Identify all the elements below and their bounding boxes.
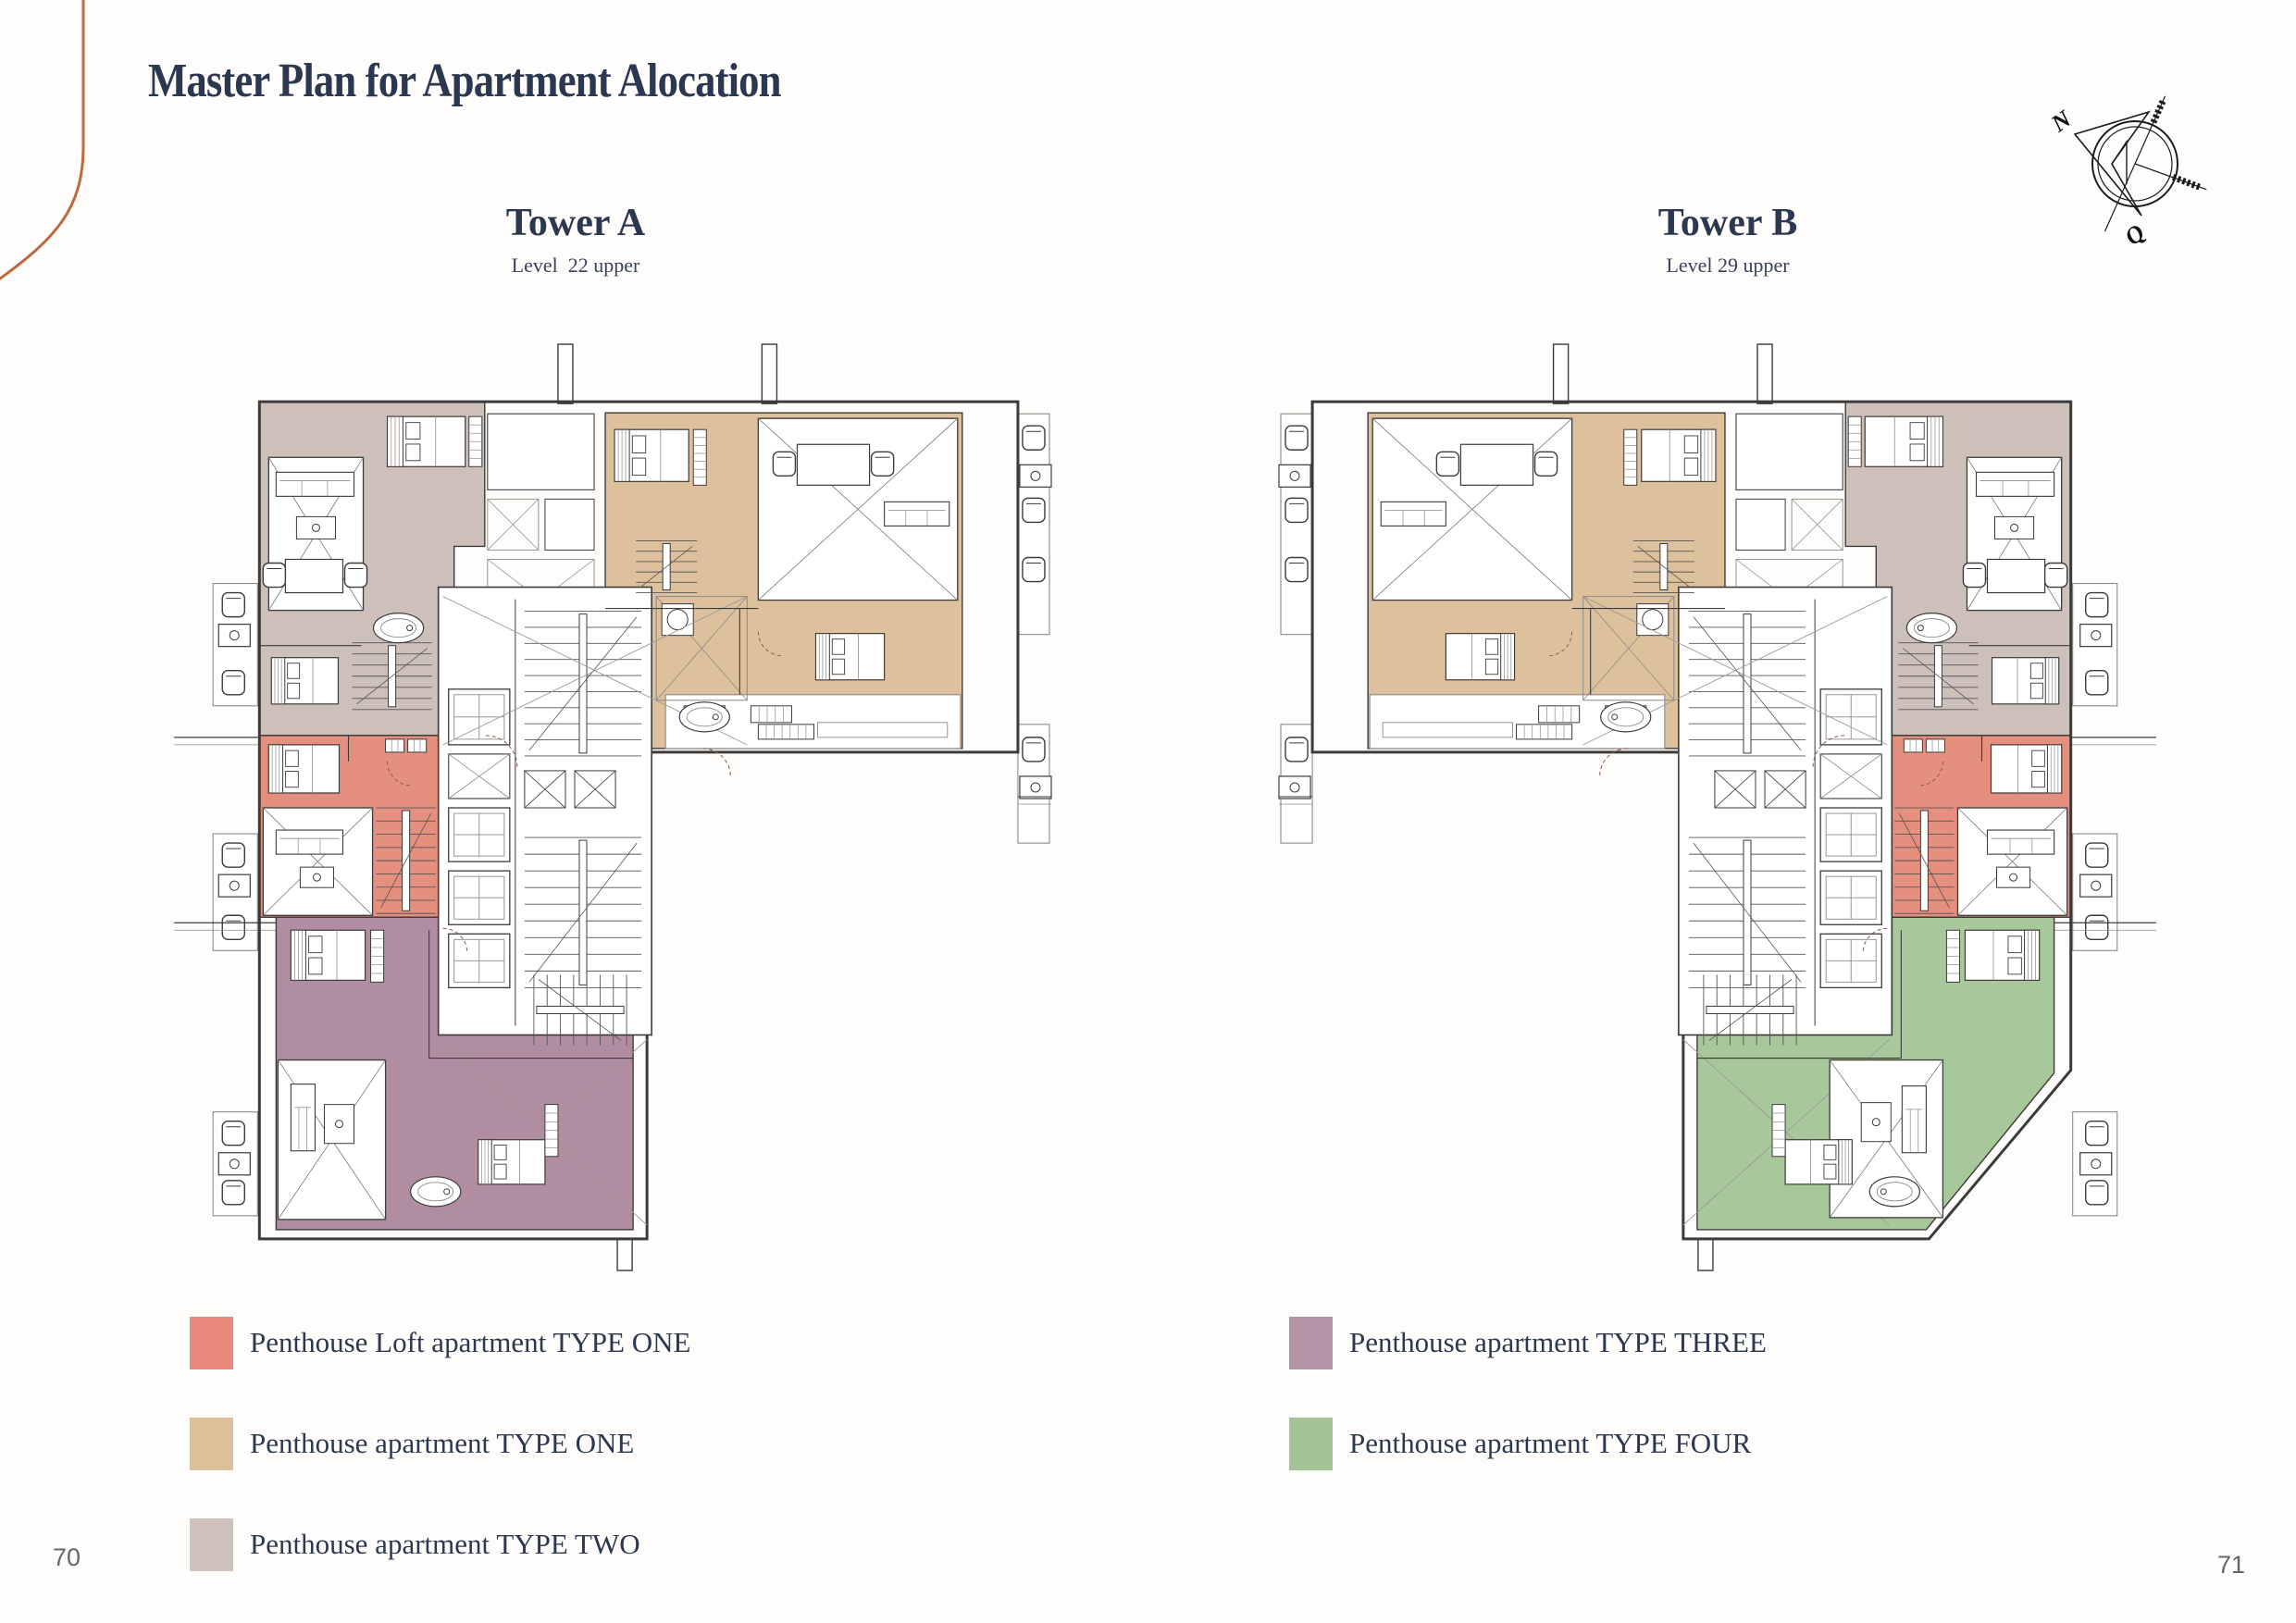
corner-accent-curve xyxy=(0,0,139,315)
tower-b-heading: Tower B Level 29 upper xyxy=(1552,202,1904,278)
legend-color-swatch xyxy=(190,1518,233,1571)
legend-item: Penthouse Loft apartment TYPE ONE xyxy=(190,1316,690,1369)
tower-a-floor-plan xyxy=(109,326,1055,1271)
brochure-page: Master Plan for Apartment Alocation N Q … xyxy=(0,0,2296,1623)
legend-label: Penthouse Loft apartment TYPE ONE xyxy=(250,1326,690,1359)
legend-color-swatch xyxy=(190,1418,233,1470)
tower-b-floor-plan xyxy=(1275,326,2221,1271)
legend-label: Penthouse apartment TYPE FOUR xyxy=(1349,1427,1751,1460)
compass-q-label: Q xyxy=(2119,218,2150,250)
legend-right: Penthouse apartment TYPE THREE Penthouse… xyxy=(1289,1316,1767,1518)
legend-left: Penthouse Loft apartment TYPE ONE Pentho… xyxy=(190,1316,690,1618)
page-title: Master Plan for Apartment Alocation xyxy=(148,54,781,108)
page-number-right: 71 xyxy=(2217,1551,2245,1580)
legend-label: Penthouse apartment TYPE TWO xyxy=(250,1528,640,1561)
tower-b-level: Level 29 upper xyxy=(1552,254,1904,278)
legend-color-swatch xyxy=(190,1317,233,1369)
legend-label: Penthouse apartment TYPE ONE xyxy=(250,1427,634,1460)
page-number-left: 70 xyxy=(53,1543,81,1572)
legend-item: Penthouse apartment TYPE FOUR xyxy=(1289,1417,1767,1470)
legend-item: Penthouse apartment TYPE TWO xyxy=(190,1518,690,1571)
legend-label: Penthouse apartment TYPE THREE xyxy=(1349,1326,1767,1359)
compass-north-label: N xyxy=(2045,105,2077,138)
legend-color-swatch xyxy=(1289,1317,1333,1369)
tower-a-heading: Tower A Level 22 upper xyxy=(400,202,751,278)
legend-item: Penthouse apartment TYPE THREE xyxy=(1289,1316,1767,1369)
tower-a-level: Level 22 upper xyxy=(400,254,751,278)
legend-color-swatch xyxy=(1289,1418,1333,1470)
legend-item: Penthouse apartment TYPE ONE xyxy=(190,1417,690,1470)
compass-icon: N Q xyxy=(2045,88,2216,259)
tower-b-name: Tower B xyxy=(1552,202,1904,244)
tower-a-name: Tower A xyxy=(400,202,751,244)
